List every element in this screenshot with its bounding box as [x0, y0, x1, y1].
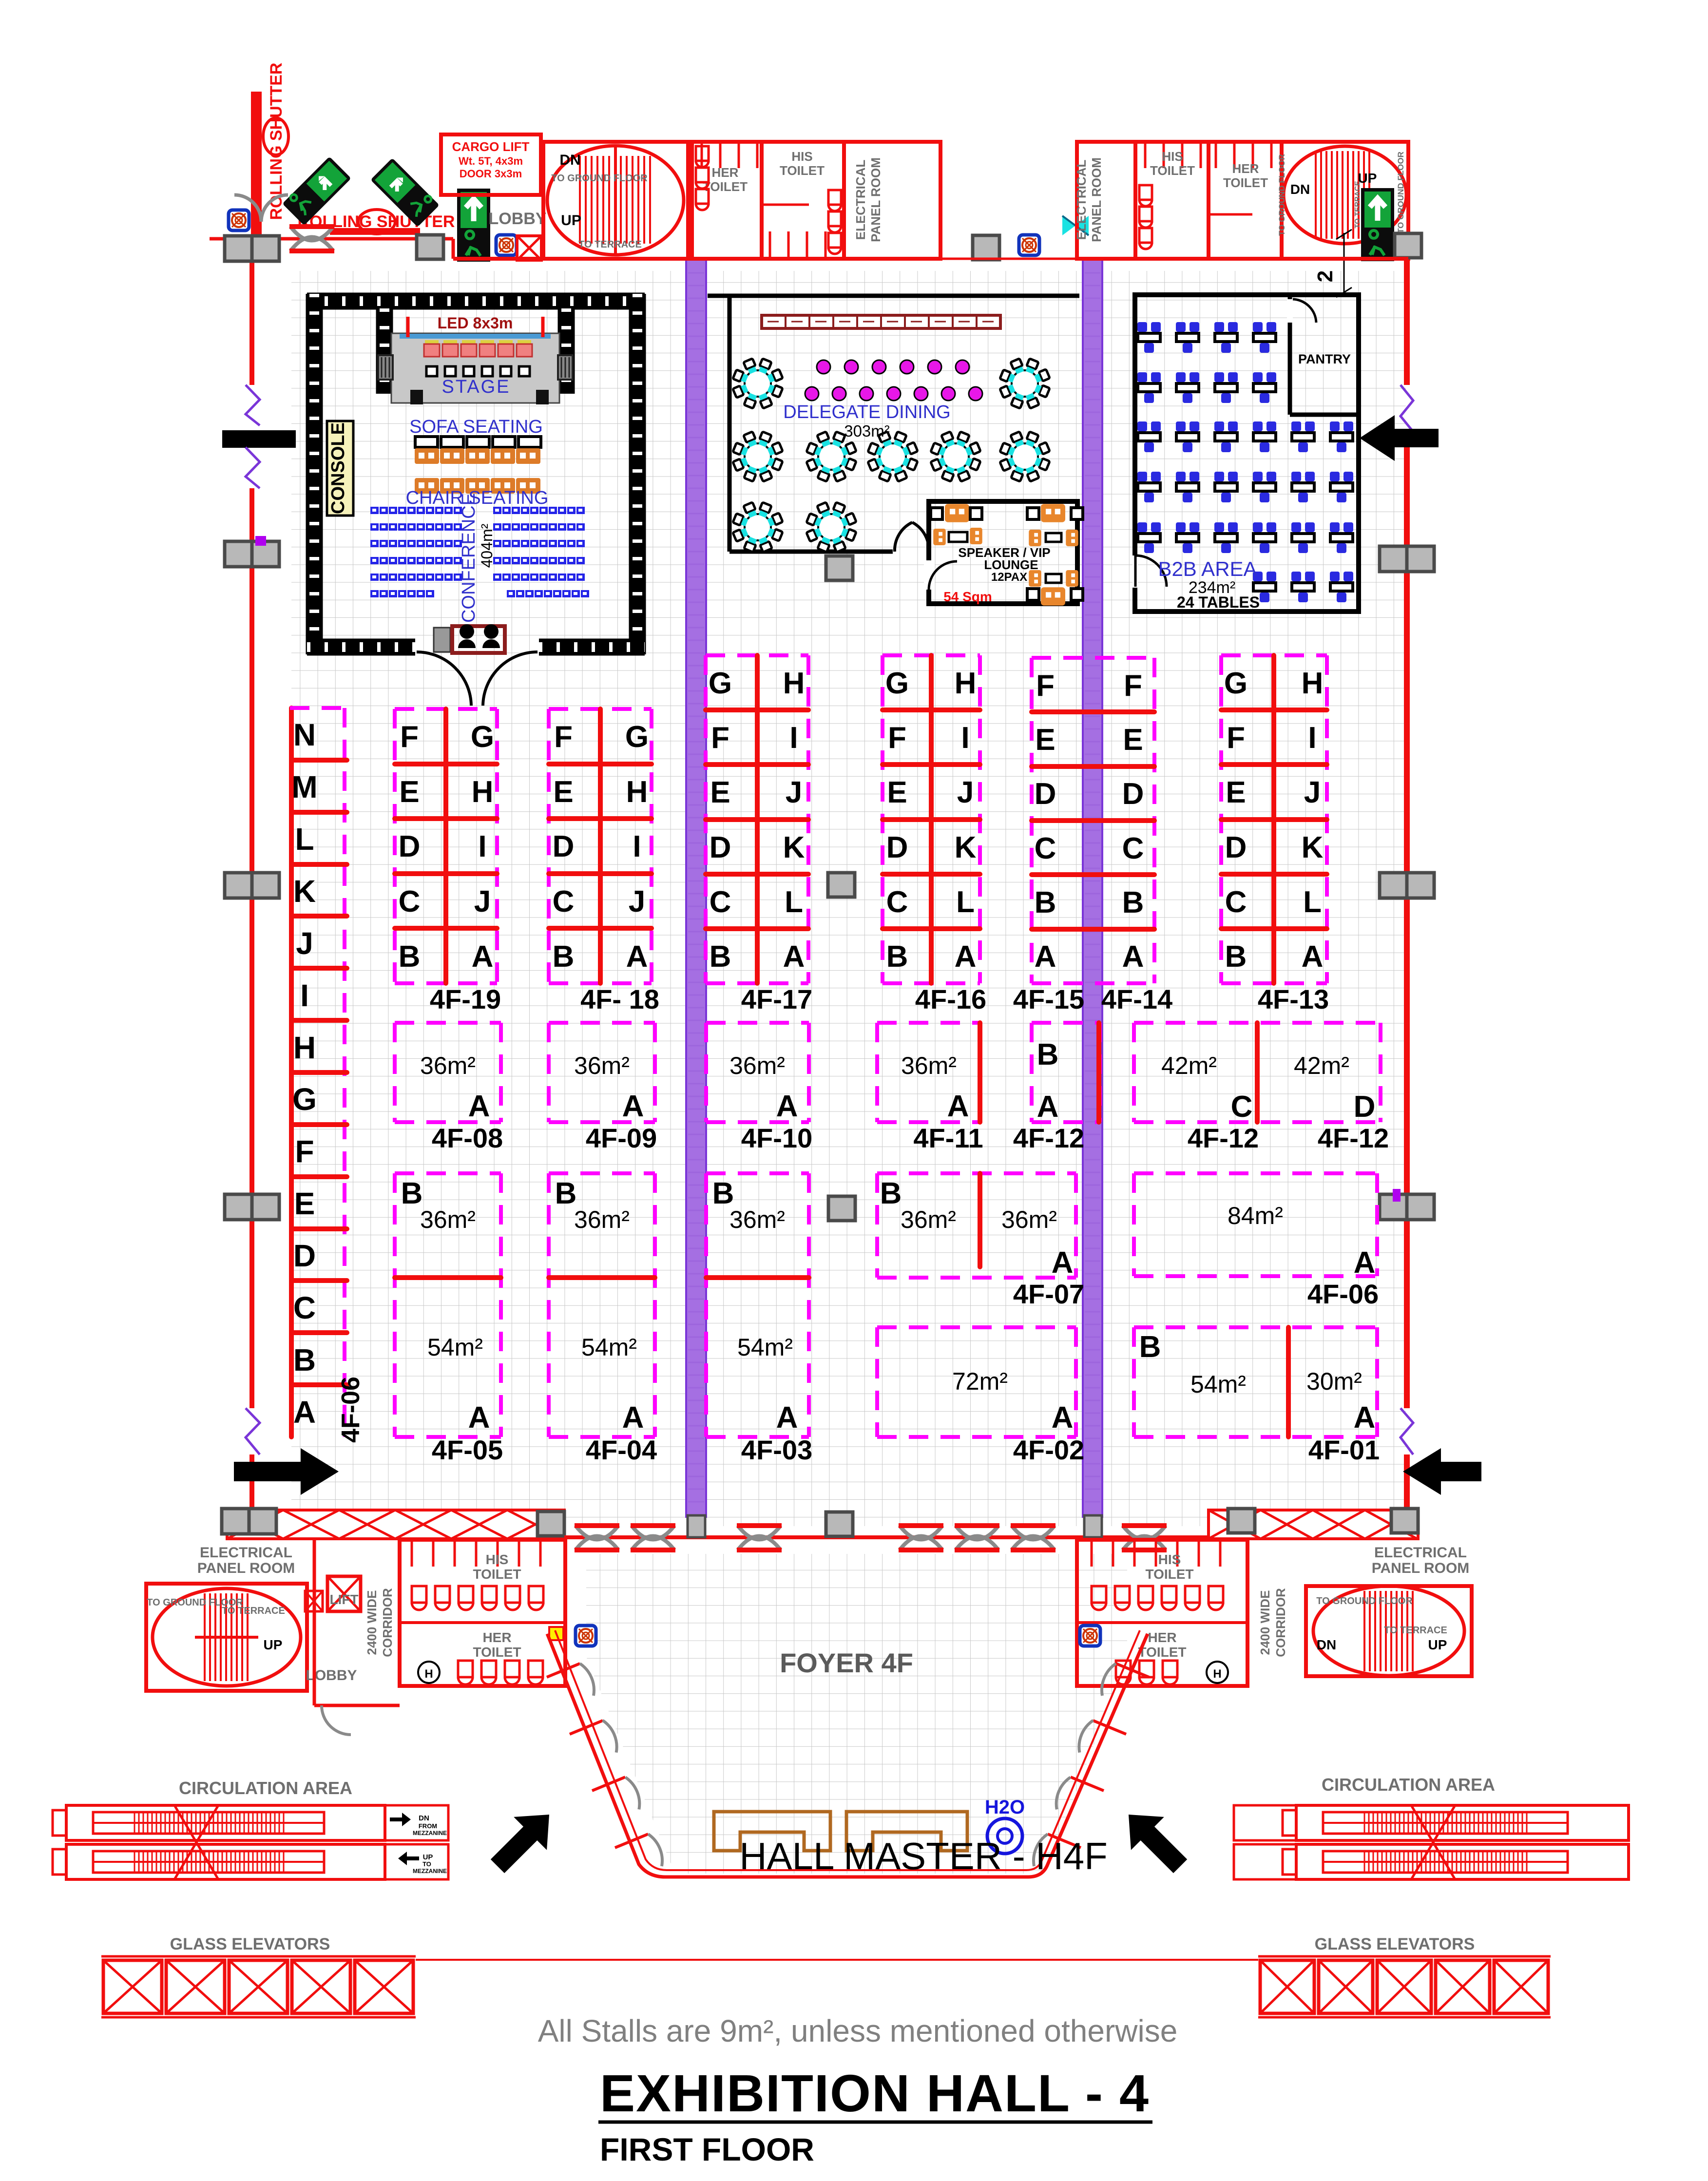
svg-text:B: B	[710, 940, 731, 974]
svg-text:B: B	[399, 940, 421, 974]
svg-text:H2O: H2O	[985, 1797, 1025, 1818]
svg-text:4F-06: 4F-06	[1307, 1279, 1379, 1309]
svg-text:LOUNGE: LOUNGE	[984, 557, 1038, 572]
svg-text:PANTRY: PANTRY	[1298, 352, 1351, 366]
svg-text:G: G	[1224, 667, 1247, 700]
svg-text:FIRST FLOOR: FIRST FLOOR	[600, 2131, 814, 2167]
svg-text:B: B	[1122, 886, 1144, 919]
svg-text:CIRCULATION AREA: CIRCULATION AREA	[1322, 1775, 1495, 1795]
svg-text:E: E	[1035, 723, 1055, 757]
svg-text:E: E	[553, 775, 573, 809]
svg-text:M: M	[291, 769, 317, 804]
svg-text:B: B	[1035, 886, 1056, 919]
svg-text:C: C	[553, 885, 575, 918]
svg-text:C: C	[710, 885, 731, 919]
svg-text:TOILET: TOILET	[1138, 1645, 1186, 1660]
svg-text:HER: HER	[482, 1630, 511, 1645]
svg-text:All Stalls are 9m², unless men: All Stalls are 9m², unless mentioned oth…	[538, 2013, 1178, 2048]
svg-text:LIFT: LIFT	[329, 1592, 358, 1607]
svg-text:I: I	[478, 830, 486, 863]
svg-text:A: A	[1052, 1246, 1074, 1280]
svg-text:F: F	[1124, 669, 1142, 703]
svg-text:A: A	[1302, 940, 1324, 974]
svg-text:D: D	[1354, 1090, 1376, 1124]
svg-text:A: A	[1354, 1401, 1376, 1435]
svg-text:J: J	[1304, 776, 1321, 809]
svg-text:TO GROUND FLOOR: TO GROUND FLOOR	[1316, 1596, 1413, 1607]
svg-text:A: A	[468, 1090, 490, 1123]
svg-text:12PAX: 12PAX	[991, 571, 1027, 584]
svg-text:A: A	[622, 1090, 644, 1123]
svg-text:PANEL ROOM: PANEL ROOM	[197, 1560, 295, 1576]
svg-text:4F-01: 4F-01	[1308, 1435, 1380, 1465]
svg-text:H: H	[1302, 667, 1324, 700]
svg-text:D: D	[710, 831, 731, 864]
svg-text:CIRCULATION AREA: CIRCULATION AREA	[179, 1778, 352, 1798]
svg-text:J: J	[296, 926, 313, 961]
svg-text:404m²: 404m²	[478, 523, 496, 568]
svg-text:HIS: HIS	[1158, 1552, 1181, 1567]
svg-text:D: D	[1122, 777, 1144, 811]
svg-text:H: H	[1213, 1667, 1221, 1681]
svg-text:42m²: 42m²	[1161, 1052, 1217, 1079]
svg-text:C: C	[399, 885, 421, 918]
svg-text:HIS: HIS	[1162, 149, 1183, 164]
svg-text:HER: HER	[712, 165, 739, 180]
svg-text:TO TERRACE: TO TERRACE	[222, 1606, 285, 1616]
svg-text:C: C	[1231, 1090, 1253, 1124]
svg-text:DN: DN	[1317, 1637, 1336, 1652]
svg-text:4F-03: 4F-03	[741, 1435, 812, 1465]
svg-text:PANEL ROOM: PANEL ROOM	[1372, 1560, 1470, 1576]
svg-text:ELECTRICAL: ELECTRICAL	[1074, 160, 1089, 240]
svg-text:84m²: 84m²	[1228, 1202, 1283, 1229]
svg-text:SOFA SEATING: SOFA SEATING	[409, 417, 543, 437]
svg-text:H: H	[472, 775, 494, 809]
svg-text:TO GROUND FLOOR: TO GROUND FLOOR	[1277, 154, 1286, 236]
svg-text:B: B	[293, 1342, 316, 1377]
svg-text:36m²: 36m²	[901, 1052, 957, 1079]
svg-text:D: D	[399, 830, 421, 863]
svg-text:J: J	[629, 885, 645, 918]
svg-text:CONFERENCE: CONFERENCE	[459, 493, 479, 623]
svg-text:A: A	[776, 1090, 798, 1123]
svg-text:30m²: 30m²	[1306, 1368, 1362, 1395]
svg-text:LOBBY: LOBBY	[489, 210, 547, 228]
svg-text:MEZZANINE: MEZZANINE	[413, 1868, 447, 1875]
svg-text:F: F	[295, 1134, 314, 1169]
svg-text:A: A	[1354, 1246, 1376, 1280]
svg-text:L: L	[295, 822, 314, 857]
svg-text:B: B	[1037, 1038, 1059, 1071]
svg-text:DN: DN	[559, 152, 580, 168]
svg-text:A: A	[947, 1090, 969, 1123]
svg-text:B: B	[880, 1177, 902, 1210]
svg-text:J: J	[474, 885, 491, 918]
svg-text:4F-11: 4F-11	[913, 1123, 983, 1153]
svg-text:ELECTRICAL: ELECTRICAL	[853, 160, 868, 240]
svg-text:F: F	[711, 721, 729, 755]
svg-text:4F-12: 4F-12	[1318, 1123, 1389, 1153]
svg-text:STAGE: STAGE	[442, 377, 511, 397]
svg-text:4F-12: 4F-12	[1188, 1123, 1259, 1153]
svg-text:GLASS ELEVATORS: GLASS ELEVATORS	[1315, 1935, 1475, 1953]
svg-text:36m²: 36m²	[729, 1052, 785, 1079]
svg-text:I: I	[300, 978, 309, 1013]
svg-text:L: L	[956, 885, 975, 919]
svg-text:C: C	[886, 885, 908, 919]
svg-text:TO GROUND FLOOR: TO GROUND FLOOR	[1396, 152, 1405, 233]
svg-text:B: B	[553, 940, 575, 974]
svg-text:GLASS ELEVATORS: GLASS ELEVATORS	[170, 1935, 330, 1953]
svg-text:CONSOLE: CONSOLE	[328, 422, 348, 514]
svg-text:DELEGATE DINING: DELEGATE DINING	[783, 402, 950, 422]
svg-text:A: A	[1052, 1401, 1074, 1435]
svg-text:54m²: 54m²	[1190, 1371, 1246, 1398]
svg-text:I: I	[961, 721, 969, 755]
svg-text:CORRIDOR: CORRIDOR	[380, 1588, 395, 1657]
svg-text:4F-04: 4F-04	[586, 1435, 657, 1465]
svg-text:54m²: 54m²	[427, 1334, 483, 1361]
svg-text:J: J	[786, 776, 802, 809]
svg-text:TO GROUND FLOOR: TO GROUND FLOOR	[551, 173, 648, 184]
svg-text:H: H	[955, 667, 977, 700]
svg-text:L: L	[1303, 885, 1322, 919]
svg-text:A: A	[776, 1401, 798, 1435]
svg-text:TOILET: TOILET	[473, 1645, 521, 1660]
svg-text:HER: HER	[1232, 161, 1259, 176]
svg-text:C: C	[1225, 885, 1247, 919]
svg-text:HER: HER	[1148, 1630, 1176, 1645]
svg-text:B: B	[1225, 940, 1247, 974]
svg-text:HIS: HIS	[486, 1552, 509, 1567]
svg-text:UP: UP	[561, 212, 581, 229]
svg-text:H: H	[424, 1667, 433, 1681]
svg-text:4F-05: 4F-05	[432, 1435, 503, 1465]
svg-text:4F-17: 4F-17	[741, 984, 812, 1014]
svg-text:F: F	[400, 720, 419, 754]
svg-text:A: A	[626, 940, 648, 974]
svg-text:TO TERRACE: TO TERRACE	[1384, 1625, 1447, 1636]
svg-text:TO: TO	[422, 1860, 431, 1868]
svg-text:D: D	[293, 1238, 316, 1273]
svg-text:D: D	[1035, 777, 1056, 811]
svg-text:B: B	[712, 1177, 734, 1210]
svg-text:TOILET: TOILET	[780, 163, 825, 178]
svg-text:LED 8x3m: LED 8x3m	[438, 314, 513, 332]
svg-text:I: I	[789, 721, 798, 755]
svg-text:B: B	[886, 940, 908, 974]
svg-text:A: A	[1035, 940, 1056, 974]
svg-text:36m²: 36m²	[574, 1052, 630, 1079]
svg-text:PANEL ROOM: PANEL ROOM	[868, 157, 883, 242]
svg-text:H: H	[293, 1030, 316, 1065]
svg-text:54m²: 54m²	[737, 1334, 793, 1361]
svg-text:4F-07: 4F-07	[1013, 1279, 1084, 1309]
svg-text:36m²: 36m²	[420, 1206, 476, 1233]
svg-text:F: F	[1227, 721, 1245, 755]
svg-text:4F-16: 4F-16	[915, 984, 986, 1014]
svg-text:TOILET: TOILET	[1145, 1567, 1193, 1582]
svg-text:4F-06: 4F-06	[337, 1377, 365, 1443]
svg-text:2400 WIDE: 2400 WIDE	[365, 1590, 379, 1655]
svg-text:G: G	[885, 667, 909, 700]
svg-text:C: C	[1035, 832, 1056, 865]
svg-text:72m²: 72m²	[952, 1368, 1008, 1395]
svg-text:24 TABLES: 24 TABLES	[1177, 593, 1260, 611]
svg-text:42m²: 42m²	[1294, 1052, 1349, 1079]
svg-text:54 Sqm: 54 Sqm	[943, 589, 992, 604]
svg-text:K: K	[293, 874, 316, 909]
svg-text:C: C	[293, 1290, 316, 1325]
svg-text:HALL MASTER - H4F: HALL MASTER - H4F	[739, 1835, 1108, 1877]
svg-text:4F-09: 4F-09	[586, 1123, 657, 1153]
svg-text:TO TERRACE: TO TERRACE	[1353, 181, 1362, 228]
svg-text:F: F	[1036, 669, 1055, 703]
svg-text:G: G	[471, 720, 494, 754]
svg-text:A: A	[293, 1395, 316, 1430]
svg-text:E: E	[399, 775, 419, 809]
svg-text:4F-02: 4F-02	[1013, 1435, 1084, 1465]
svg-text:MEZZANINE: MEZZANINE	[413, 1830, 447, 1837]
svg-text:TO TERRACE: TO TERRACE	[578, 239, 642, 250]
svg-text:ELECTRICAL: ELECTRICAL	[200, 1545, 292, 1561]
svg-text:36m²: 36m²	[901, 1206, 956, 1233]
svg-text:B: B	[555, 1177, 577, 1210]
svg-text:DOOR 3x3m: DOOR 3x3m	[460, 168, 522, 180]
svg-text:B: B	[401, 1177, 423, 1210]
svg-text:D: D	[886, 831, 908, 864]
svg-text:F: F	[554, 720, 573, 754]
svg-text:E: E	[294, 1186, 315, 1221]
svg-text:I: I	[633, 830, 641, 863]
svg-text:L: L	[785, 885, 803, 919]
svg-text:FOYER 4F: FOYER 4F	[780, 1647, 913, 1678]
svg-text:TOILET: TOILET	[1223, 175, 1268, 190]
svg-text:H: H	[626, 775, 648, 809]
svg-text:EXHIBITION HALL - 4: EXHIBITION HALL - 4	[600, 2064, 1150, 2123]
svg-text:A: A	[622, 1401, 644, 1435]
svg-text:E: E	[710, 776, 730, 809]
svg-text:A: A	[468, 1401, 490, 1435]
svg-text:E: E	[887, 776, 907, 809]
svg-text:CORRIDOR: CORRIDOR	[1273, 1588, 1288, 1657]
svg-text:F: F	[888, 721, 906, 755]
svg-text:CARGO LIFT: CARGO LIFT	[452, 139, 530, 154]
svg-text:PANEL ROOM: PANEL ROOM	[1089, 157, 1104, 242]
svg-text:DN: DN	[1290, 182, 1310, 197]
svg-text:36m²: 36m²	[574, 1206, 630, 1233]
svg-text:G: G	[709, 667, 732, 700]
svg-text:B: B	[1139, 1330, 1161, 1364]
svg-text:A: A	[783, 940, 805, 974]
svg-text:303m²: 303m²	[844, 422, 890, 440]
svg-text:4F-10: 4F-10	[741, 1123, 812, 1153]
svg-text:I: I	[1308, 721, 1316, 755]
svg-text:4F-14: 4F-14	[1101, 984, 1172, 1014]
svg-text:E: E	[1123, 723, 1143, 757]
svg-text:A: A	[1122, 940, 1144, 974]
svg-text:2: 2	[1313, 270, 1337, 282]
svg-text:36m²: 36m²	[1001, 1206, 1057, 1233]
svg-text:4F-19: 4F-19	[430, 984, 501, 1014]
svg-text:2400 WIDE: 2400 WIDE	[1258, 1590, 1272, 1655]
svg-text:FROM: FROM	[419, 1822, 437, 1830]
svg-text:G: G	[292, 1082, 317, 1117]
svg-text:4F-13: 4F-13	[1258, 984, 1329, 1014]
svg-text:K: K	[783, 831, 805, 864]
svg-text:UP: UP	[1428, 1637, 1447, 1652]
svg-text:ELECTRICAL: ELECTRICAL	[1374, 1545, 1467, 1561]
svg-text:K: K	[1302, 831, 1324, 864]
svg-text:N: N	[293, 717, 316, 752]
svg-text:C: C	[1122, 832, 1144, 865]
svg-text:E: E	[1226, 776, 1246, 809]
svg-text:36m²: 36m²	[729, 1206, 785, 1233]
svg-text:J: J	[957, 776, 974, 809]
svg-text:A: A	[472, 940, 494, 974]
svg-text:HIS: HIS	[791, 149, 812, 164]
svg-text:36m²: 36m²	[420, 1052, 476, 1079]
svg-text:A: A	[955, 940, 977, 974]
svg-text:4F-15: 4F-15	[1013, 984, 1084, 1014]
svg-text:DN: DN	[419, 1814, 429, 1822]
svg-text:A: A	[1037, 1090, 1059, 1124]
svg-text:K: K	[955, 831, 977, 864]
svg-text:4F- 18: 4F- 18	[580, 984, 659, 1014]
svg-text:D: D	[553, 830, 575, 863]
svg-text:4F-08: 4F-08	[432, 1123, 503, 1153]
svg-text:B2B AREA: B2B AREA	[1158, 557, 1257, 580]
svg-text:Wt. 5T, 4x3m: Wt. 5T, 4x3m	[459, 155, 523, 167]
svg-text:G: G	[625, 720, 649, 754]
svg-text:UP: UP	[264, 1637, 283, 1652]
svg-text:54m²: 54m²	[581, 1334, 637, 1361]
svg-text:TOILET: TOILET	[1150, 163, 1195, 178]
svg-text:TOILET: TOILET	[473, 1567, 521, 1582]
svg-text:H: H	[783, 667, 805, 700]
svg-text:D: D	[1225, 831, 1247, 864]
svg-text:4F-12: 4F-12	[1013, 1123, 1084, 1153]
